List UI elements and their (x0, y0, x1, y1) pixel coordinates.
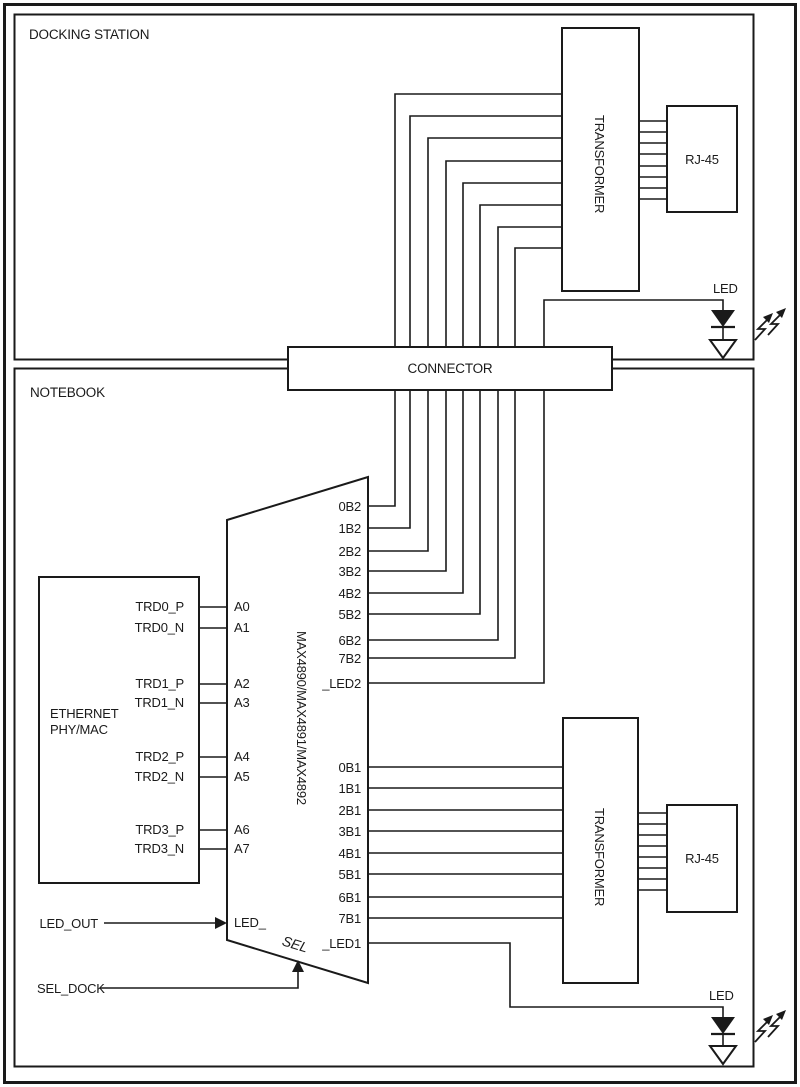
phy-pin-label: TRD0_N (80, 620, 184, 635)
chip-pin-label: 2B1 (301, 803, 361, 818)
chip-pin-label: 4B2 (301, 586, 361, 601)
chip-pin-label: 7B1 (301, 911, 361, 926)
sel-dock-signal-label: SEL_DOCK (37, 981, 105, 996)
chip-pin-label: 4B1 (301, 846, 361, 861)
phy-pin-label: TRD2_N (80, 769, 184, 784)
chip-led2-pin-label: _LED2 (301, 676, 361, 691)
docking-rj45-stubs (639, 121, 667, 199)
phy-pin-label: TRD0_P (80, 599, 184, 614)
led-diode-icon (711, 310, 735, 327)
led-diode-icon (711, 1017, 735, 1034)
light-ray-icon (755, 1015, 773, 1042)
light-ray-icon (768, 1010, 786, 1037)
led1-wire (368, 943, 723, 1017)
docking-led-symbol (710, 310, 736, 358)
chip-pin-label: 3B1 (301, 824, 361, 839)
phy-pin-label: TRD3_N (80, 841, 184, 856)
connector-label: CONNECTOR (288, 347, 612, 390)
ground-arrow-icon (710, 340, 736, 358)
chip-led-pin-label: LED_ (234, 915, 266, 930)
chip-pin-label: 6B2 (301, 633, 361, 648)
light-ray-icon (768, 308, 786, 335)
ground-arrow-icon (710, 1046, 736, 1064)
schematic-canvas: DOCKING STATION NOTEBOOK CONNECTOR TRANS… (0, 0, 800, 1087)
chip-pin-label: A1 (234, 620, 250, 635)
phy-pin-label: TRD3_P (80, 822, 184, 837)
chip-pin-label: A3 (234, 695, 250, 710)
notebook-led-label: LED (709, 988, 734, 1003)
chip-pin-label: 3B2 (301, 564, 361, 579)
chip-pin-label: 0B1 (301, 760, 361, 775)
chip-pin-label: A6 (234, 822, 250, 837)
sel-dock-arrow (100, 960, 304, 988)
notebook-led-light-arrows (755, 1010, 786, 1042)
notebook-label: NOTEBOOK (30, 385, 105, 400)
chip-pin-label: A7 (234, 841, 250, 856)
chip-pin-label: A5 (234, 769, 250, 784)
led-out-signal-label: LED_OUT (20, 916, 98, 931)
phy-pin-label: TRD2_P (80, 749, 184, 764)
light-ray-icon (755, 313, 773, 340)
chip-pin-label: 1B2 (301, 521, 361, 536)
chip-pin-label: A0 (234, 599, 250, 614)
notebook-rj45-label: RJ-45 (667, 805, 737, 912)
chip-pin-label: A4 (234, 749, 250, 764)
phy-pin-label: TRD1_P (80, 676, 184, 691)
docking-transformer-label: TRANSFORMER (592, 115, 607, 213)
phy-chip-stubs (199, 607, 227, 849)
chip-pin-label: 0B2 (301, 499, 361, 514)
docking-led-light-arrows (755, 308, 786, 340)
chip-pin-label: 2B2 (301, 544, 361, 559)
chip-pin-label: A2 (234, 676, 250, 691)
docking-rj45-label: RJ-45 (667, 106, 737, 212)
chip-pin-label: 6B1 (301, 890, 361, 905)
chip-pin-label: 7B2 (301, 651, 361, 666)
docking-station-box (15, 15, 754, 360)
notebook-transformer-label: TRANSFORMER (592, 808, 607, 906)
notebook-b2-wires (368, 390, 544, 683)
chip-pin-label: 1B1 (301, 781, 361, 796)
ethernet-phy-title-line2: PHY/MAC (50, 722, 108, 737)
phy-pin-label: TRD1_N (80, 695, 184, 710)
notebook-led-symbol (710, 1017, 736, 1064)
docking-station-label: DOCKING STATION (29, 27, 149, 42)
led-out-arrow (104, 917, 227, 929)
ethernet-phy-title: ETHERNET PHY/MAC (50, 706, 118, 738)
notebook-rj45-stubs (638, 813, 667, 890)
chip-pin-label: 5B2 (301, 607, 361, 622)
arrowhead-icon (215, 917, 227, 929)
docking-led-wire (544, 300, 723, 347)
chip-led1-pin-label: _LED1 (301, 936, 361, 951)
docking-led-label: LED (713, 281, 738, 296)
chip-pin-label: 5B1 (301, 867, 361, 882)
